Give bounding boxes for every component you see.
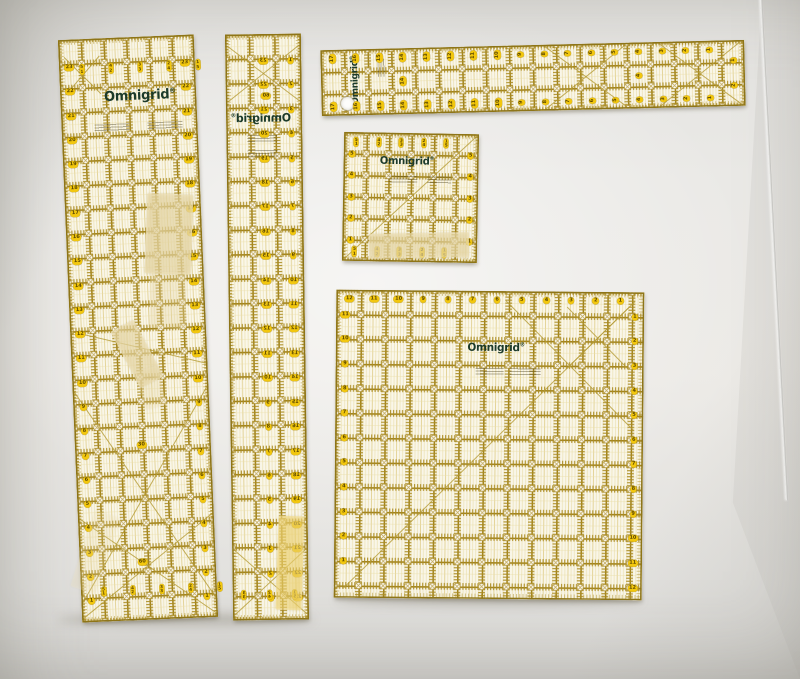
number-pill: 1 (707, 95, 714, 102)
number-pill: 10 (394, 296, 404, 303)
number-pill: 11 (369, 296, 379, 303)
number-pill: 15 (261, 253, 271, 260)
number-pill: 21 (66, 112, 76, 119)
number-pill: 11 (289, 301, 299, 308)
background-seam (760, 0, 788, 500)
number-pill: 19 (292, 496, 302, 503)
number-pill: 14 (400, 76, 407, 86)
ruler-3x18-horizontal-face: Omnigrid®1716151413121110987654321171615… (320, 40, 745, 116)
number-pill: 10 (628, 535, 638, 542)
omnigrid-logo: Omnigrid® (231, 112, 291, 124)
number-pill: 14 (399, 52, 406, 62)
number-pill: 10 (289, 277, 299, 284)
number-pill: 12 (448, 99, 455, 109)
fine-print (510, 368, 541, 376)
number-pill: 7 (265, 448, 272, 455)
number-pill: 12 (344, 295, 354, 302)
number-pill: 23 (180, 59, 190, 66)
number-pill: 17 (70, 209, 80, 216)
number-pill: 10 (493, 49, 500, 59)
masking-tape (145, 193, 194, 275)
number-pill: 2 4 (267, 590, 272, 600)
number-pill: 2 (682, 47, 689, 54)
number-pill: 2 4 (166, 60, 171, 71)
number-pill: 16 (71, 234, 81, 241)
number-pill: 18 (185, 180, 195, 187)
ruler-12x12-square: Omnigrid®1211109876543211234567891011121… (334, 290, 645, 601)
number-pill: 8 (265, 424, 272, 431)
number-pill: 30 (136, 441, 146, 448)
number-pill: 22 (181, 83, 191, 90)
number-pill: 10 (340, 335, 350, 342)
number-pill: 13 (74, 307, 84, 314)
number-pill: 15 (377, 101, 384, 111)
number-pill: 17 (291, 448, 301, 455)
omnigrid-logo: Omnigrid® (467, 342, 524, 354)
number-pill: 12 (289, 325, 299, 332)
number-pill: 5 (266, 497, 273, 504)
omnigrid-logo: Omnigrid® (380, 156, 435, 168)
number-pill: 6 (289, 179, 296, 186)
photo-scene: Omnigrid®2322212019181716151413121110987… (0, 0, 800, 679)
number-pill: 21 (259, 106, 269, 113)
number-pill: 6 (266, 472, 273, 479)
number-pill: 21 (182, 108, 192, 115)
number-pill: 5 (289, 155, 296, 162)
fine-print (94, 123, 130, 132)
number-pill: 60 (261, 92, 271, 99)
number-pill: 10 (193, 375, 203, 382)
number-pill: 11 (470, 50, 477, 60)
number-pill: 16 (261, 228, 271, 235)
masking-tape (369, 232, 469, 259)
number-pill: 60 (137, 558, 147, 565)
number-pill: 19 (68, 161, 78, 168)
number-pill: 5 1 (354, 136, 359, 146)
number-pill: 11 (192, 350, 202, 357)
registered-mark: ® (231, 113, 236, 119)
number-pill: 17 (330, 102, 337, 112)
number-pill: 2 4 (188, 582, 193, 593)
number-pill: 4 (266, 521, 273, 528)
number-pill: 2 4 (421, 138, 426, 148)
number-pill: 15 (72, 258, 82, 265)
fine-print (427, 176, 451, 184)
number-pill: 5 1 (352, 246, 357, 256)
number-pill: 11 (340, 311, 350, 318)
number-pill: 13 (190, 302, 200, 309)
number-pill: 4 2 (108, 63, 113, 74)
number-pill: 3 3 (399, 137, 404, 147)
number-pill: 7 (289, 203, 296, 210)
number-pill: 19 (260, 155, 270, 162)
number-pill: 11 (628, 560, 638, 567)
number-pill: 4 2 (130, 585, 135, 596)
number-pill: 12 (191, 326, 201, 333)
number-pill: 12 (262, 326, 272, 333)
number-pill: 10 (263, 375, 273, 382)
number-pill: 11 (76, 355, 86, 362)
number-pill: 4 (288, 130, 295, 137)
number-pill: 13 (424, 100, 431, 110)
number-pill: 22 (259, 82, 269, 89)
registered-mark: ® (430, 156, 435, 162)
fine-print (388, 175, 418, 184)
number-pill: 14 (290, 374, 300, 381)
number-pill: 3 (658, 47, 665, 54)
number-pill: 9 (290, 252, 297, 259)
number-pill: 18 (291, 472, 301, 479)
number-pill: 9 (265, 399, 272, 406)
number-pill: 15 (290, 399, 300, 406)
number-pill: 3 (288, 106, 295, 113)
number-pill: 13 (423, 51, 430, 61)
fine-print (147, 121, 183, 130)
number-pill: 3 3 (137, 62, 142, 73)
number-pill: 2 (267, 570, 274, 577)
number-pill: 4 (635, 48, 642, 55)
number-pill: 12 (627, 584, 637, 591)
number-pill: 2 (288, 81, 295, 88)
number-pill: 14 (261, 277, 271, 284)
number-pill: 15 (376, 52, 383, 62)
number-pill: 10 (495, 98, 502, 108)
number-pill: 1 5 (217, 581, 222, 592)
number-pill: 13 (290, 350, 300, 357)
number-pill: 14 (189, 277, 199, 284)
number-pill: 12 (75, 331, 85, 338)
number-pill: 12 (446, 51, 453, 61)
number-pill: 8 (290, 228, 297, 235)
ruler-3x18-horizontal: Omnigrid®1716151413121110987654321171615… (320, 40, 745, 116)
ruler-12x12-square-face: Omnigrid®1211109876543211234567891011121… (334, 290, 645, 601)
number-pill: 23 (258, 57, 268, 64)
number-pill: 13 (262, 301, 272, 308)
number-pill: 10 (77, 379, 87, 386)
number-pill: 14 (73, 282, 83, 289)
number-pill: 4 2 (376, 137, 381, 147)
number-pill: 3 3 (159, 584, 164, 595)
masking-tape (275, 516, 304, 611)
fine-print (476, 368, 504, 376)
registered-mark: ® (169, 86, 176, 95)
masking-tape (150, 272, 187, 329)
number-pill: 8 (541, 50, 548, 57)
number-pill: 20 (67, 137, 77, 144)
omnigrid-logo: Omnigrid® (104, 87, 176, 104)
number-pill: 1 5 (195, 59, 200, 70)
number-pill: 16 (352, 53, 359, 63)
number-pill: 19 (184, 156, 194, 163)
number-pill: 11 (262, 350, 272, 357)
number-pill: 1 5 (444, 138, 449, 148)
number-pill: 20 (259, 131, 269, 138)
number-pill: 9 (517, 51, 524, 58)
number-pill: 22 (65, 88, 75, 95)
number-pill: 6 (588, 49, 595, 56)
number-pill: 3 (267, 546, 274, 553)
registered-mark: ® (520, 342, 525, 348)
number-pill: 3 3 (242, 590, 247, 600)
number-pill: 17 (260, 204, 270, 211)
number-pill: 5 1 (101, 586, 106, 597)
number-pill: 1 (705, 46, 712, 53)
number-pill: 1 (287, 57, 294, 64)
number-pill: 17 (329, 53, 336, 63)
number-pill: 18 (260, 179, 270, 186)
number-pill: 18 (69, 185, 79, 192)
number-pill: 20 (183, 132, 193, 139)
ruler-grid (334, 290, 645, 601)
number-pill: 4 (635, 72, 642, 79)
number-pill: 5 1 (79, 64, 84, 75)
number-pill: 23 (64, 64, 74, 71)
number-pill: 16 (291, 423, 301, 430)
number-pill: 3 (660, 96, 667, 103)
